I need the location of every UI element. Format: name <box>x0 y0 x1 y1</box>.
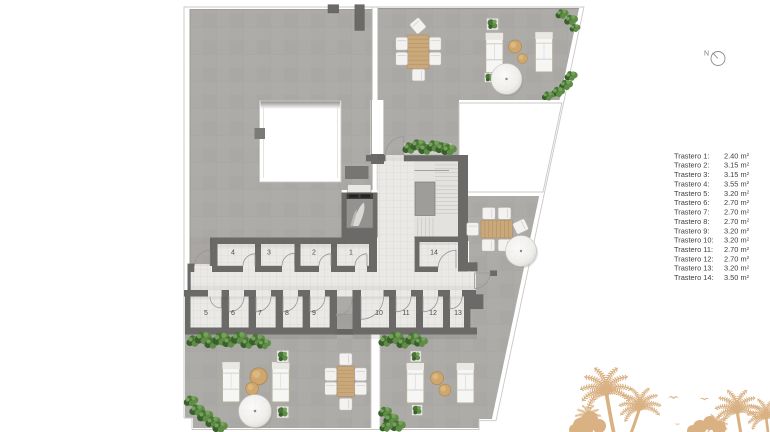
svg-text:Trastero 4:: Trastero 4: <box>674 179 709 188</box>
svg-text:2.70 m2: 2.70 m2 <box>724 208 750 217</box>
svg-text:2.70 m2: 2.70 m2 <box>724 198 750 207</box>
svg-text:3.20 m2: 3.20 m2 <box>724 226 750 235</box>
svg-text:Trastero 8:: Trastero 8: <box>674 217 709 226</box>
svg-text:Trastero 9:: Trastero 9: <box>674 226 709 235</box>
svg-text:12: 12 <box>429 310 437 317</box>
svg-text:3.20 m2: 3.20 m2 <box>724 236 750 245</box>
svg-text:3: 3 <box>267 250 271 257</box>
svg-text:Trastero 12:: Trastero 12: <box>674 254 714 263</box>
svg-text:3.15 m2: 3.15 m2 <box>724 161 750 170</box>
svg-text:Trastero 3:: Trastero 3: <box>674 170 709 179</box>
svg-text:7: 7 <box>258 310 262 317</box>
svg-text:4: 4 <box>231 250 235 257</box>
svg-text:11: 11 <box>402 310 409 317</box>
svg-text:Trastero 10:: Trastero 10: <box>674 236 714 245</box>
svg-text:Trastero 6:: Trastero 6: <box>674 198 709 207</box>
svg-text:3.20 m2: 3.20 m2 <box>724 264 750 273</box>
svg-text:2.40 m2: 2.40 m2 <box>724 151 750 160</box>
svg-text:N: N <box>704 51 709 58</box>
svg-text:13: 13 <box>454 310 462 317</box>
svg-text:Trastero 2:: Trastero 2: <box>674 161 709 170</box>
svg-text:10: 10 <box>375 310 383 317</box>
svg-text:6: 6 <box>231 310 235 317</box>
svg-text:5: 5 <box>204 310 208 317</box>
svg-text:Trastero 13:: Trastero 13: <box>674 264 714 273</box>
svg-text:3.55 m2: 3.55 m2 <box>724 179 750 188</box>
svg-text:Trastero 7:: Trastero 7: <box>674 208 709 217</box>
svg-text:8: 8 <box>285 310 289 317</box>
svg-text:2.70 m2: 2.70 m2 <box>724 245 750 254</box>
svg-text:2: 2 <box>312 250 316 257</box>
svg-text:3.20 m2: 3.20 m2 <box>724 189 750 198</box>
svg-text:Trastero 11:: Trastero 11: <box>674 245 713 254</box>
svg-text:9: 9 <box>312 310 316 317</box>
svg-text:3.50 m2: 3.50 m2 <box>724 273 750 282</box>
svg-text:2.70 m2: 2.70 m2 <box>724 217 750 226</box>
svg-text:Trastero 1:: Trastero 1: <box>674 151 709 160</box>
svg-text:2.70 m2: 2.70 m2 <box>724 254 750 263</box>
svg-text:3.15 m2: 3.15 m2 <box>724 170 750 179</box>
svg-text:14: 14 <box>430 250 438 257</box>
svg-text:1: 1 <box>349 250 353 257</box>
svg-text:Trastero 5:: Trastero 5: <box>674 189 709 198</box>
svg-text:Trastero 14:: Trastero 14: <box>674 273 714 282</box>
